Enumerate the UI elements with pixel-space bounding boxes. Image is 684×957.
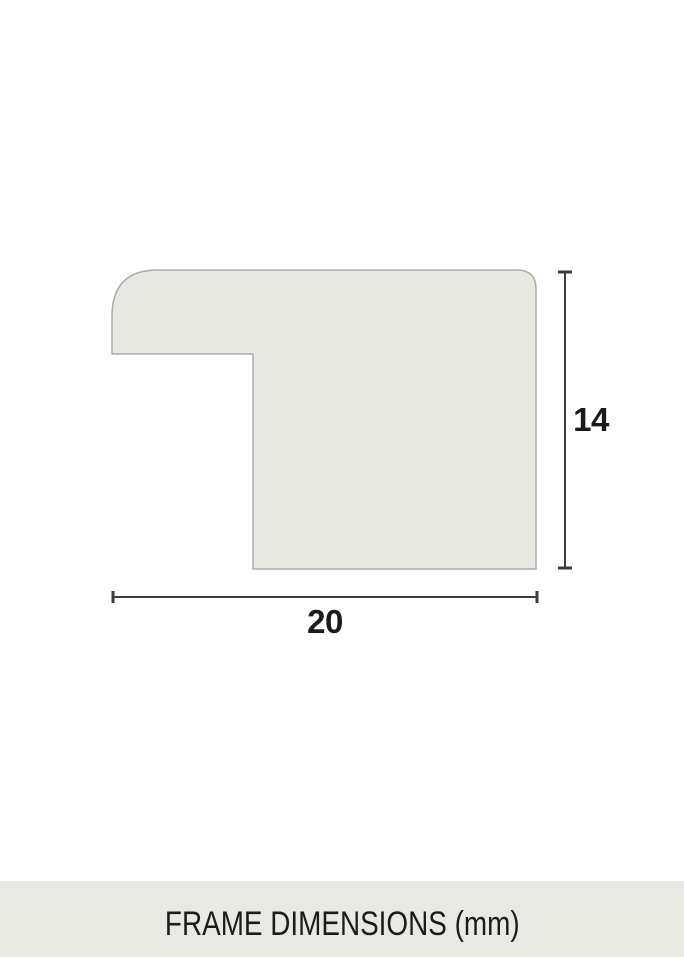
caption-bar: FRAME DIMENSIONS (mm) — [0, 881, 684, 957]
frame-profile-shape — [112, 270, 536, 569]
frame-profile-diagram — [0, 0, 684, 957]
page: 14 20 FRAME DIMENSIONS (mm) — [0, 0, 684, 957]
width-dimension-label: 20 — [295, 602, 355, 642]
caption-text: FRAME DIMENSIONS (mm) — [165, 907, 520, 941]
height-dimension-label: 14 — [563, 400, 619, 440]
